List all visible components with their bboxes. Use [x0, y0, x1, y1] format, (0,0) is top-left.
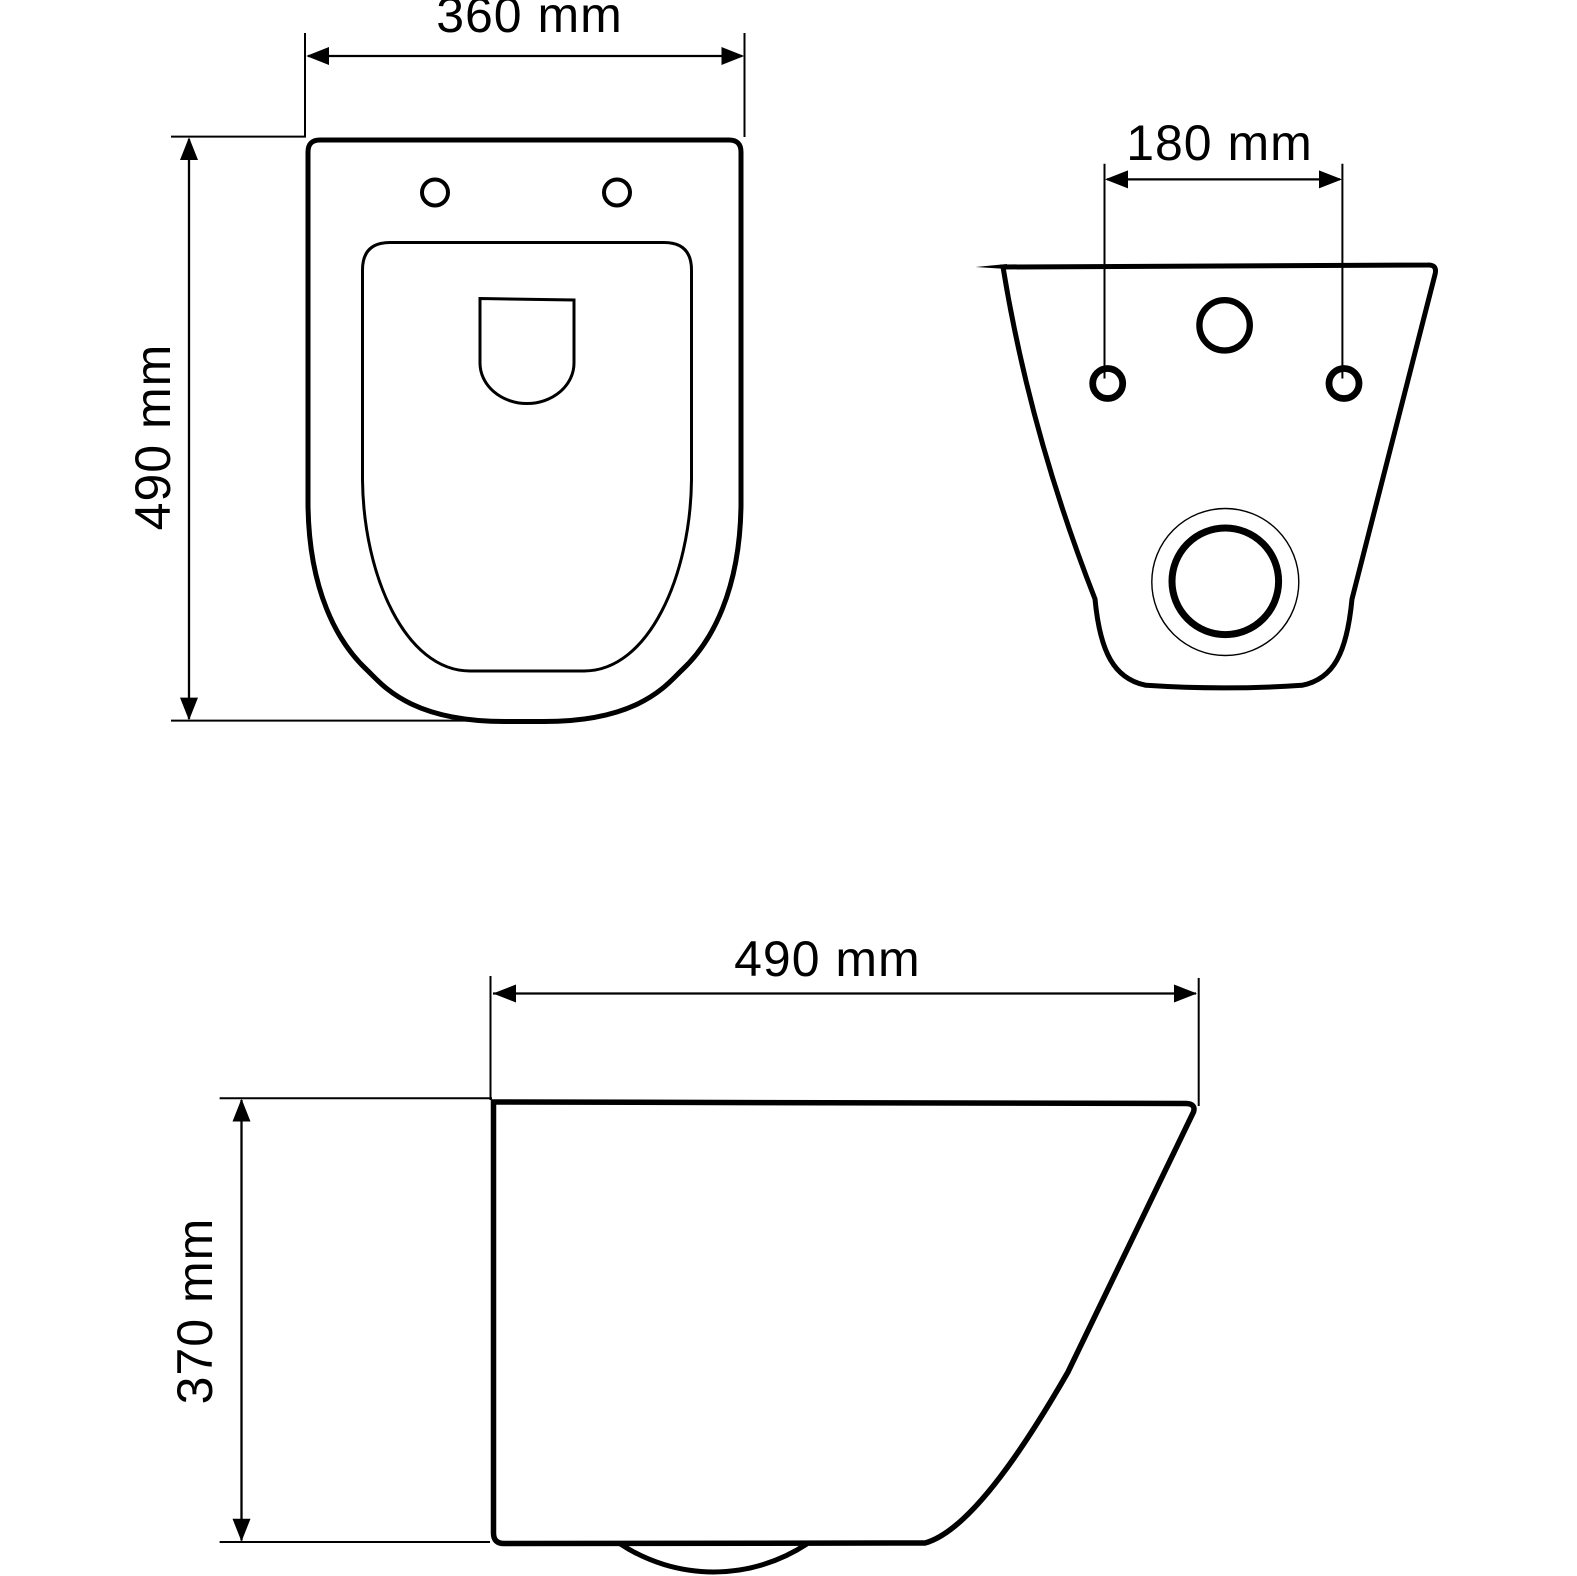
svg-text:360 mm: 360 mm: [436, 0, 623, 43]
svg-text:180 mm: 180 mm: [1126, 115, 1313, 171]
svg-text:370 mm: 370 mm: [167, 1218, 223, 1405]
svg-text:490 mm: 490 mm: [734, 931, 921, 987]
svg-text:490 mm: 490 mm: [125, 344, 181, 531]
